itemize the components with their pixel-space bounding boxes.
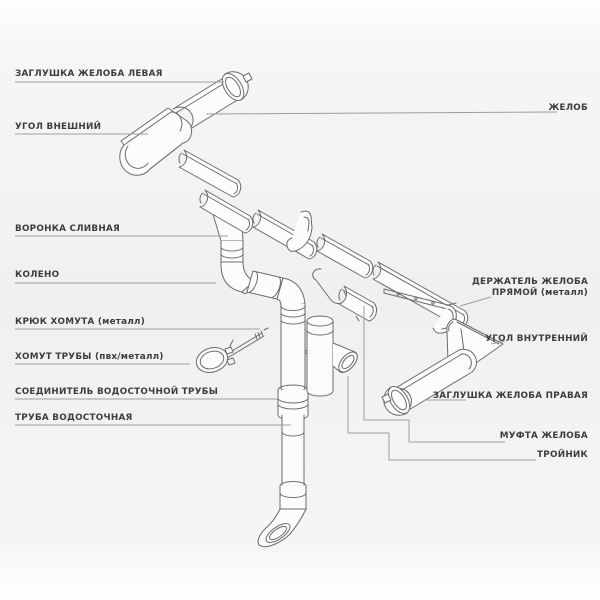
part-truba-vodostochnaya — [281, 304, 308, 392]
part-khomut-truby — [193, 340, 235, 376]
part-soedinitel-vodostochnoy-truby — [278, 385, 308, 420]
label-zaglushka-zheloba-levaya: ЗАГЛУШКА ЖЕЛОБА ЛЕВАЯ — [15, 69, 163, 80]
label-kryuk-khomuta: КРЮК ХОМУТА (металл) — [15, 317, 145, 328]
part-truba-vodostochnaya-lower — [258, 415, 306, 547]
part-koleno — [221, 262, 305, 306]
label-ugol-vnutrenniy: УГОЛ ВНУТРЕННИЙ — [485, 334, 588, 345]
label-troynik: ТРОЙНИК — [537, 450, 588, 461]
label-voronka-slivnaya: ВОРОНКА СЛИВНАЯ — [15, 224, 120, 235]
label-khomut-truby: ХОМУТ ТРУБЫ (пвх/металл) — [15, 352, 164, 363]
part-ugol-vneshniy — [120, 108, 192, 175]
label-derzhatel-zheloba: ДЕРЖАТЕЛЬ ЖЕЛОБА ПРЯМОЙ (металл) — [472, 277, 588, 300]
part-troynik — [307, 316, 361, 396]
label-derzhatel-line1: ДЕРЖАТЕЛЬ ЖЕЛОБА — [472, 277, 588, 288]
label-mufta-zheloba: МУФТА ЖЕЛОБА — [500, 431, 588, 442]
part-kryuk-pvc — [313, 269, 347, 304]
leader-zhelob — [206, 112, 557, 114]
label-ugol-vneshniy: УГОЛ ВНЕШНИЙ — [15, 122, 101, 133]
label-zhelob: ЖЕЛОБ — [548, 103, 588, 114]
label-koleno: КОЛЕНО — [15, 270, 59, 281]
diagram-stage: ЗАГЛУШКА ЖЕЛОБА ЛЕВАЯ УГОЛ ВНЕШНИЙ ВОРОН… — [0, 0, 600, 600]
part-zhelob-segment-1 — [179, 150, 241, 197]
label-derzhatel-line2: ПРЯМОЙ (металл) — [472, 288, 588, 299]
part-zhelob-segment-3 — [317, 234, 373, 278]
part-mufta-zheloba — [339, 286, 377, 321]
label-soedinitel: СОЕДИНИТЕЛЬ ВОДОСТОЧНОЙ ТРУБЫ — [15, 387, 218, 398]
gutter-system-drawing — [0, 0, 600, 600]
label-truba-vodostochnaya: ТРУБА ВОДОСТОЧНАЯ — [15, 413, 133, 424]
label-zaglushka-zheloba-pravaya: ЗАГЛУШКА ЖЕЛОБА ПРАВАЯ — [433, 391, 588, 402]
part-voronka-slivnaya — [200, 190, 253, 266]
